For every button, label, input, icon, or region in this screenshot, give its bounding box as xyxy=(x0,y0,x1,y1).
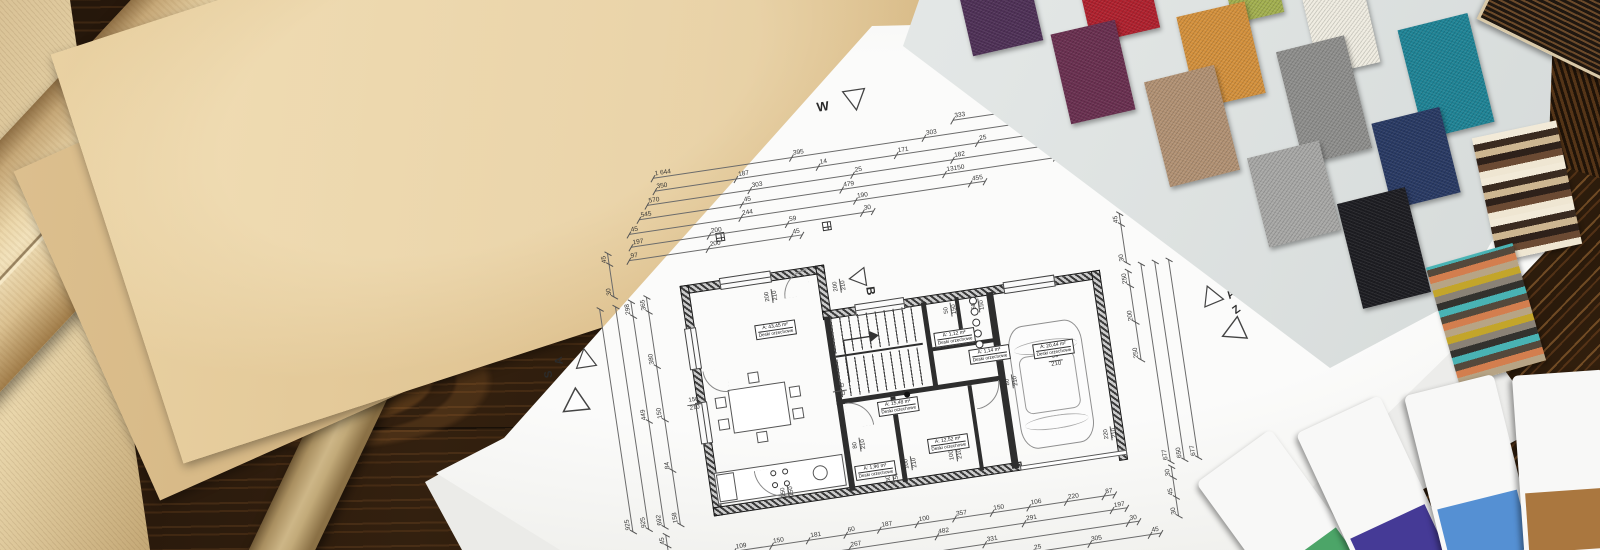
tan-card xyxy=(1512,370,1600,550)
color-chip xyxy=(1525,488,1600,550)
desk-photo: W B A S A Z xyxy=(0,0,1600,550)
color-fan-deck xyxy=(0,0,1600,550)
color-chip xyxy=(1437,490,1531,550)
